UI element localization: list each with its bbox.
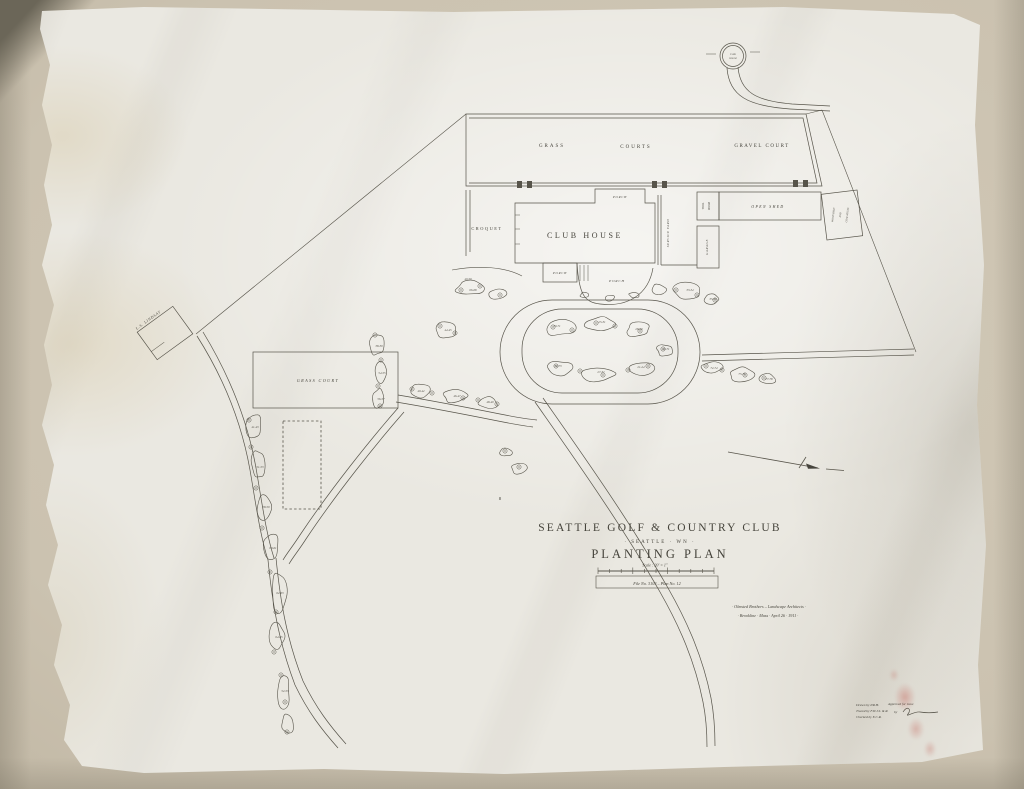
checked-by: Checked by E.C.R. xyxy=(856,715,882,719)
bed-number: 77-78 xyxy=(765,377,773,381)
croquet-fence xyxy=(466,190,470,256)
approval-signature xyxy=(903,708,938,715)
bed-number: 69-71 xyxy=(662,347,670,351)
bed-number: 27-32 xyxy=(597,370,605,374)
tree-symbol-dot xyxy=(675,289,676,290)
bed-number: 75-76 xyxy=(738,372,746,376)
club-house-building xyxy=(452,189,655,305)
wood-shed-label-1: WOOD SHED xyxy=(831,207,836,222)
planting-beds xyxy=(246,280,776,733)
bed-number: 72-74 xyxy=(710,366,718,370)
bed-number: 58-59 xyxy=(262,505,270,509)
traced-by: Traced by F.W.J.S. & R. xyxy=(856,709,888,713)
tree-symbol-dot xyxy=(602,374,603,375)
tree-symbol-dot xyxy=(275,611,276,612)
tree-symbol-dot xyxy=(479,285,480,286)
bed-number: 28-29 xyxy=(635,327,643,331)
dashed-court-outline xyxy=(283,421,321,509)
courts-label: COURTS xyxy=(620,145,651,150)
bed-number: 60-61 xyxy=(269,546,277,550)
wood-shed-label-2: AND xyxy=(839,212,843,219)
planting-bed xyxy=(629,293,639,298)
planting-bed xyxy=(652,284,667,295)
gate-posts xyxy=(517,180,808,188)
boundary-line-west xyxy=(196,114,466,334)
tree-symbol-dot xyxy=(439,325,440,326)
approval-block: Drawn by P.R.H. Traced by F.W.J.S. & R. … xyxy=(855,702,914,719)
tree-symbol-dot xyxy=(269,571,270,572)
tree-symbol-dot xyxy=(462,397,463,398)
tree-symbol-dot xyxy=(255,487,256,488)
bed-number: 52-53 xyxy=(281,689,289,693)
tree-symbol-dot xyxy=(647,365,648,366)
scale-text: Scale : 20' = 1" xyxy=(642,563,668,568)
architect-credit-2: · Brookline · Mass · April 26 · 1911 · xyxy=(738,613,799,618)
tree-symbol-dot xyxy=(454,332,455,333)
garage-label: GARAGE xyxy=(705,239,709,255)
tree-symbol-dot xyxy=(374,334,375,335)
specimen-trees xyxy=(247,284,766,734)
bed-number: 49-50 xyxy=(464,277,472,281)
bed-numbers: 41-4351-5358-5960-6162-6364-6552-5338-39… xyxy=(251,277,773,693)
open-shed-label: OPEN SHED xyxy=(751,205,784,209)
club-name: SEATTLE GOLF & COUNTRY CLUB xyxy=(538,522,782,534)
bed-number: 70-71 xyxy=(553,324,561,328)
approved-for-issue: Approved for issue xyxy=(887,702,914,706)
tree-symbol-dot xyxy=(504,450,505,451)
club-house-label: CLUB HOUSE xyxy=(547,231,623,240)
porch-left-label: PORCH xyxy=(552,271,567,275)
tree-symbol-dot xyxy=(261,527,262,528)
tree-symbol-dot xyxy=(379,405,380,406)
tree-symbol-dot xyxy=(273,651,274,652)
tree-symbol-dot xyxy=(280,674,281,675)
bed-number: 40-42 xyxy=(417,389,425,393)
tree-symbol-dot xyxy=(579,370,580,371)
lindsay-label: L.S. LINDSAY xyxy=(134,310,162,332)
bed-number: 66-68 xyxy=(469,288,477,292)
tree-symbol-dot xyxy=(518,466,519,467)
courts-enclosure xyxy=(466,114,822,188)
bed-number: 62-63 xyxy=(276,591,284,595)
tree-symbol-dot xyxy=(721,369,722,370)
tree-symbol-dot xyxy=(627,369,628,370)
croquet-label: CROQUET xyxy=(471,226,502,231)
tree-symbol-dot xyxy=(250,446,251,447)
bed-number: 41-43 xyxy=(251,425,259,429)
tree-symbol-dot xyxy=(411,388,412,389)
bed-number: 48-49 xyxy=(486,400,494,404)
tree-symbol-dot xyxy=(286,731,287,732)
tree-symbol-dot xyxy=(595,322,596,323)
plan-title: PLANTING PLAN xyxy=(591,547,728,561)
tree-symbol-dot xyxy=(248,419,249,420)
bed-number: 38-39 xyxy=(375,344,383,348)
tree-symbol-dot xyxy=(571,329,572,330)
porch-center-label: PORCH xyxy=(608,279,625,283)
north-arrow xyxy=(728,452,844,471)
architect-credit-1: · Olmsted Brothers – Landscape Architect… xyxy=(732,604,806,609)
tree-symbol-dot xyxy=(380,359,381,360)
bed-number: 33-34 xyxy=(686,288,694,292)
bed-number: 25-31 xyxy=(598,320,606,324)
bed-number: 54-55 xyxy=(378,371,386,375)
tank-house-label-2: HOUSE xyxy=(728,57,737,60)
plan-drawing: 41-4351-5358-5960-6162-6364-6552-5338-39… xyxy=(0,0,1024,789)
grass-court-label: GRASS COURT xyxy=(297,378,340,383)
file-no-text: File No. 3103 – Plan No. 12 xyxy=(632,581,680,586)
lindsay-building xyxy=(137,306,193,359)
tree-symbol-dot xyxy=(696,294,697,295)
scanned-plan-photo: 41-4351-5358-5960-6162-6364-6552-5338-39… xyxy=(0,0,1024,789)
bed-number: 51-53 xyxy=(256,465,264,469)
tree-symbol-dot xyxy=(614,325,615,326)
tree-symbol-dot xyxy=(377,385,378,386)
tree-symbol-dot xyxy=(477,399,478,400)
tree-symbol-dot xyxy=(284,701,285,702)
planting-bed xyxy=(282,714,294,733)
tool-room-label-2: ROOM xyxy=(708,201,711,211)
bed-number: 46-47 xyxy=(453,394,461,398)
tool-room-label-1: TOOL xyxy=(702,202,705,209)
tree-symbol-dot xyxy=(460,289,461,290)
loop-drive xyxy=(500,300,700,404)
tree-symbol-dot xyxy=(705,365,706,366)
club-location: · SEATTLE · WN · xyxy=(624,540,695,545)
bed-number: 21-24 xyxy=(637,365,645,369)
drawn-by: Drawn by P.R.H. xyxy=(855,703,879,707)
tree-symbol-dot xyxy=(496,403,497,404)
gravel-court-label: GRAVEL COURT xyxy=(734,144,789,149)
planting-bed xyxy=(547,319,576,335)
bed-number: 64-65 xyxy=(275,635,283,639)
boundary-line-east xyxy=(822,110,916,352)
bed-number: 35-36 xyxy=(709,297,717,301)
bed-number: 44-45 xyxy=(444,328,452,332)
approved-by: by xyxy=(894,710,898,714)
wood-shed-label-3: COAL HOUSE xyxy=(845,207,850,223)
tree-symbol-dot xyxy=(431,392,432,393)
bed-number: 56-57 xyxy=(377,397,385,401)
tank-house xyxy=(706,43,830,111)
outbuildings xyxy=(658,190,863,268)
b-mark-label: B xyxy=(499,497,502,501)
linework xyxy=(137,43,938,748)
bed-number: 72-73 xyxy=(554,364,562,368)
tank-house-label-1: TANK xyxy=(730,53,736,56)
roads xyxy=(197,332,914,748)
tree-symbol-dot xyxy=(499,294,500,295)
grass-label: GRASS xyxy=(539,144,565,149)
credit-block: · Olmsted Brothers – Landscape Architect… xyxy=(732,604,806,618)
scale-bar xyxy=(598,568,714,575)
porch-top-label: PORCH xyxy=(612,195,627,199)
service-yard-label: SERVICE YARD xyxy=(666,219,670,247)
